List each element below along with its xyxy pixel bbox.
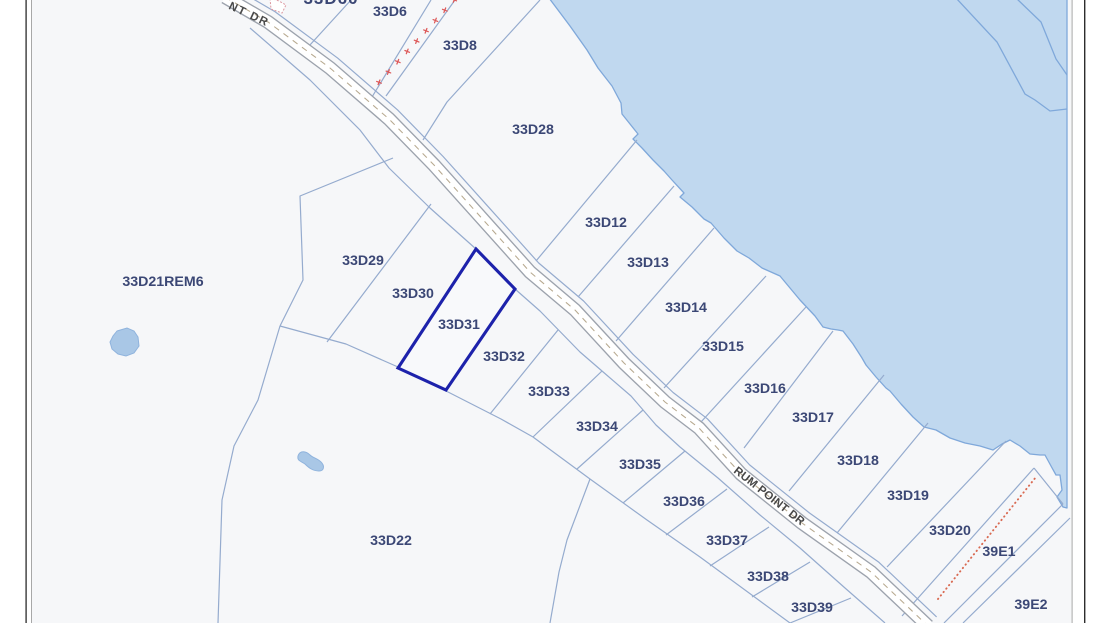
svg-text:33D32: 33D32 [483, 349, 525, 365]
svg-text:33D21REM6: 33D21REM6 [122, 274, 203, 290]
svg-text:33D12: 33D12 [585, 215, 627, 231]
svg-text:33D19: 33D19 [887, 488, 929, 504]
svg-text:33D38: 33D38 [747, 569, 789, 585]
svg-text:33D30: 33D30 [392, 286, 434, 302]
svg-text:33D17: 33D17 [792, 410, 834, 426]
svg-text:33D35: 33D35 [619, 457, 661, 473]
svg-text:39E2: 39E2 [1014, 597, 1047, 613]
svg-text:33D39: 33D39 [791, 600, 833, 616]
svg-text:33D28: 33D28 [512, 122, 554, 138]
svg-text:33D13: 33D13 [627, 255, 669, 271]
svg-text:33D22: 33D22 [370, 533, 412, 549]
svg-text:33D36: 33D36 [663, 494, 705, 510]
svg-text:33D15: 33D15 [702, 339, 744, 355]
svg-text:33D29: 33D29 [342, 253, 384, 269]
svg-text:39E1: 39E1 [982, 544, 1015, 560]
svg-text:33D60: 33D60 [303, 0, 358, 8]
svg-text:33D8: 33D8 [443, 38, 477, 54]
svg-text:33D6: 33D6 [373, 4, 407, 20]
svg-text:33D16: 33D16 [744, 381, 786, 397]
svg-text:33D33: 33D33 [528, 384, 570, 400]
svg-text:33D20: 33D20 [929, 523, 971, 539]
svg-text:33D18: 33D18 [837, 453, 879, 469]
svg-text:33D31: 33D31 [438, 317, 480, 333]
svg-text:33D14: 33D14 [665, 300, 707, 316]
svg-text:33D37: 33D37 [706, 533, 748, 549]
svg-text:33D34: 33D34 [576, 419, 618, 435]
